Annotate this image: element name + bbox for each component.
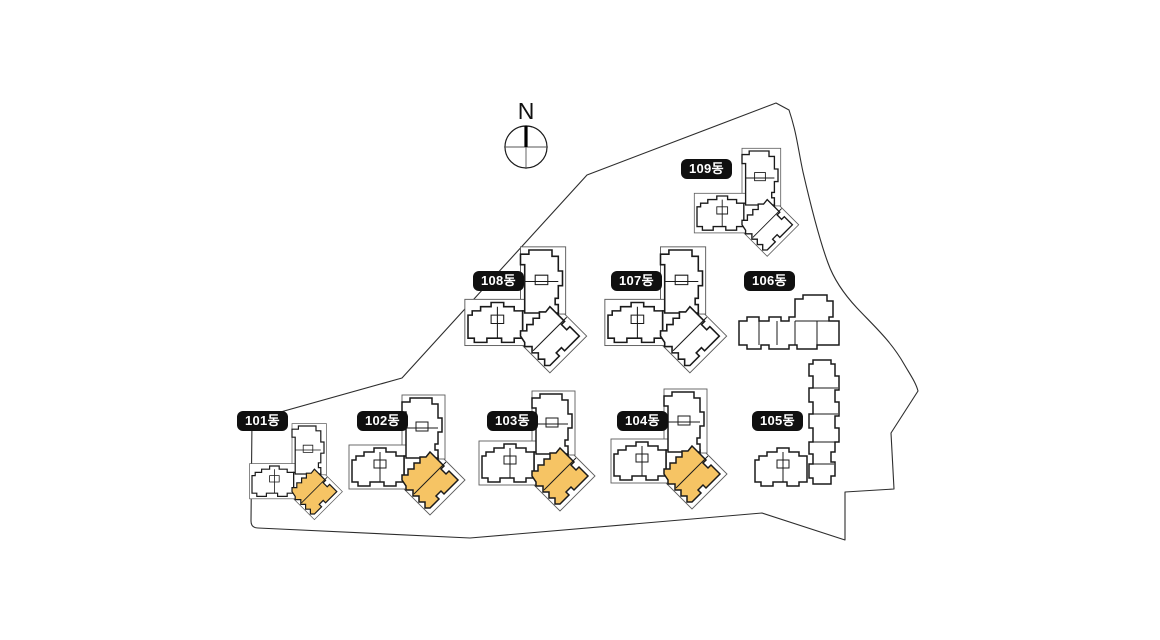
tower-wing [809, 360, 839, 484]
west-wing [755, 448, 807, 486]
building-101[interactable] [250, 424, 343, 520]
building-103[interactable] [479, 391, 595, 511]
bar-building [739, 295, 839, 349]
building-label-106[interactable]: 106동 [744, 271, 795, 291]
building-106[interactable] [739, 295, 839, 349]
compass-north-label: N [518, 98, 535, 124]
building-label-108[interactable]: 108동 [473, 271, 524, 291]
buildings-layer [250, 148, 839, 519]
building-label-102[interactable]: 102동 [357, 411, 408, 431]
building-label-104[interactable]: 104동 [617, 411, 668, 431]
building-108[interactable] [465, 247, 587, 373]
building-107[interactable] [605, 247, 727, 373]
building-label-101[interactable]: 101동 [237, 411, 288, 431]
site-plan: N [0, 0, 1160, 640]
building-label-105[interactable]: 105동 [752, 411, 803, 431]
building-label-109[interactable]: 109동 [681, 159, 732, 179]
site-plan-svg: N [0, 0, 1160, 640]
building-label-103[interactable]: 103동 [487, 411, 538, 431]
compass-icon: N [504, 98, 548, 169]
building-104[interactable] [611, 389, 727, 509]
building-label-107[interactable]: 107동 [611, 271, 662, 291]
